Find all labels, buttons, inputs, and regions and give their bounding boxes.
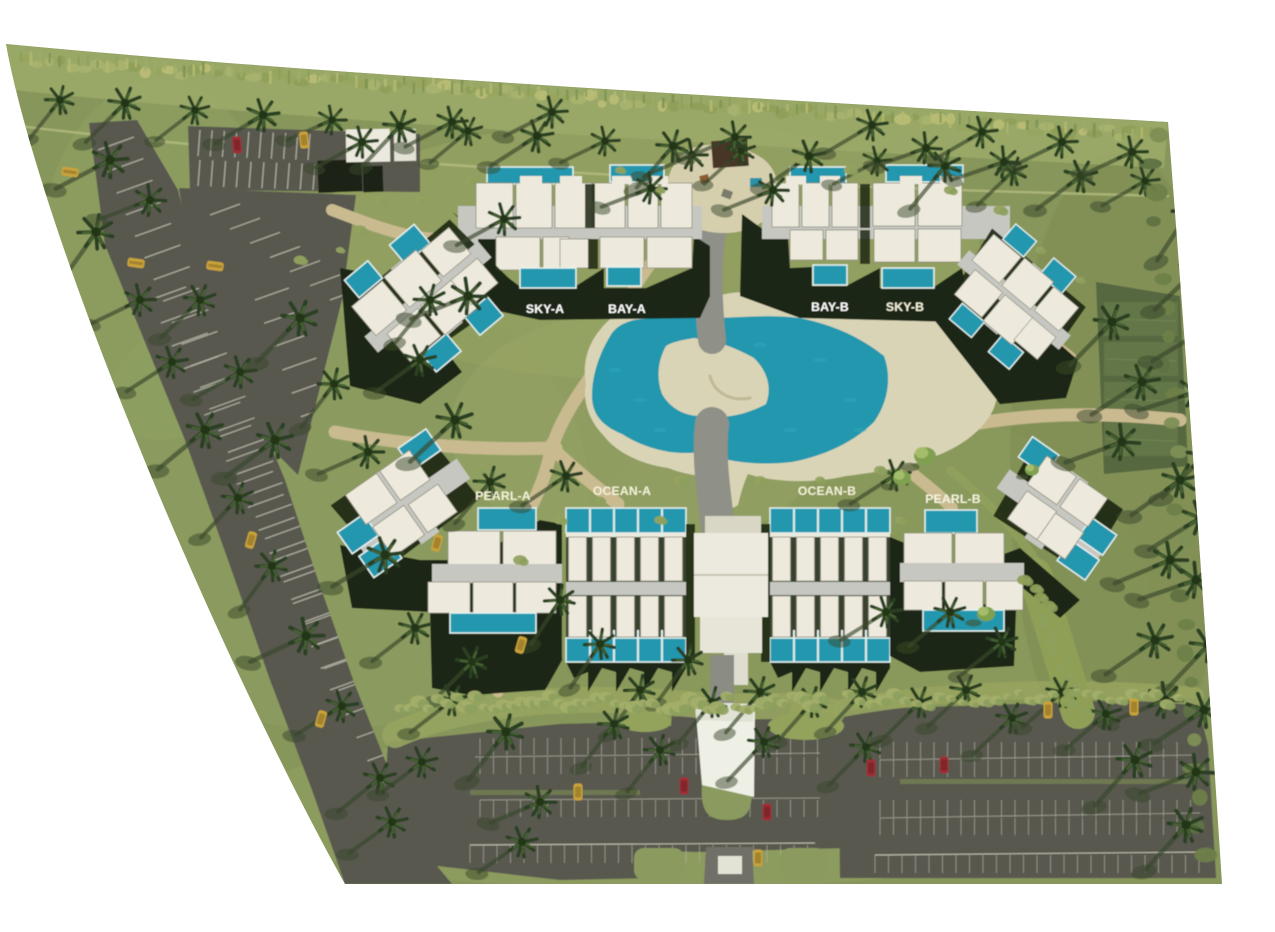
svg-text:SKY-B: SKY-B <box>886 300 924 314</box>
svg-text:PEARL-A: PEARL-A <box>475 489 531 503</box>
svg-text:OCEAN-B: OCEAN-B <box>798 484 856 498</box>
svg-text:BAY-A: BAY-A <box>608 302 646 316</box>
svg-text:BAY-B: BAY-B <box>811 300 849 314</box>
svg-text:OCEAN-A: OCEAN-A <box>593 484 651 498</box>
svg-text:PEARL-B: PEARL-B <box>925 492 981 506</box>
svg-text:SKY-A: SKY-A <box>526 302 564 316</box>
